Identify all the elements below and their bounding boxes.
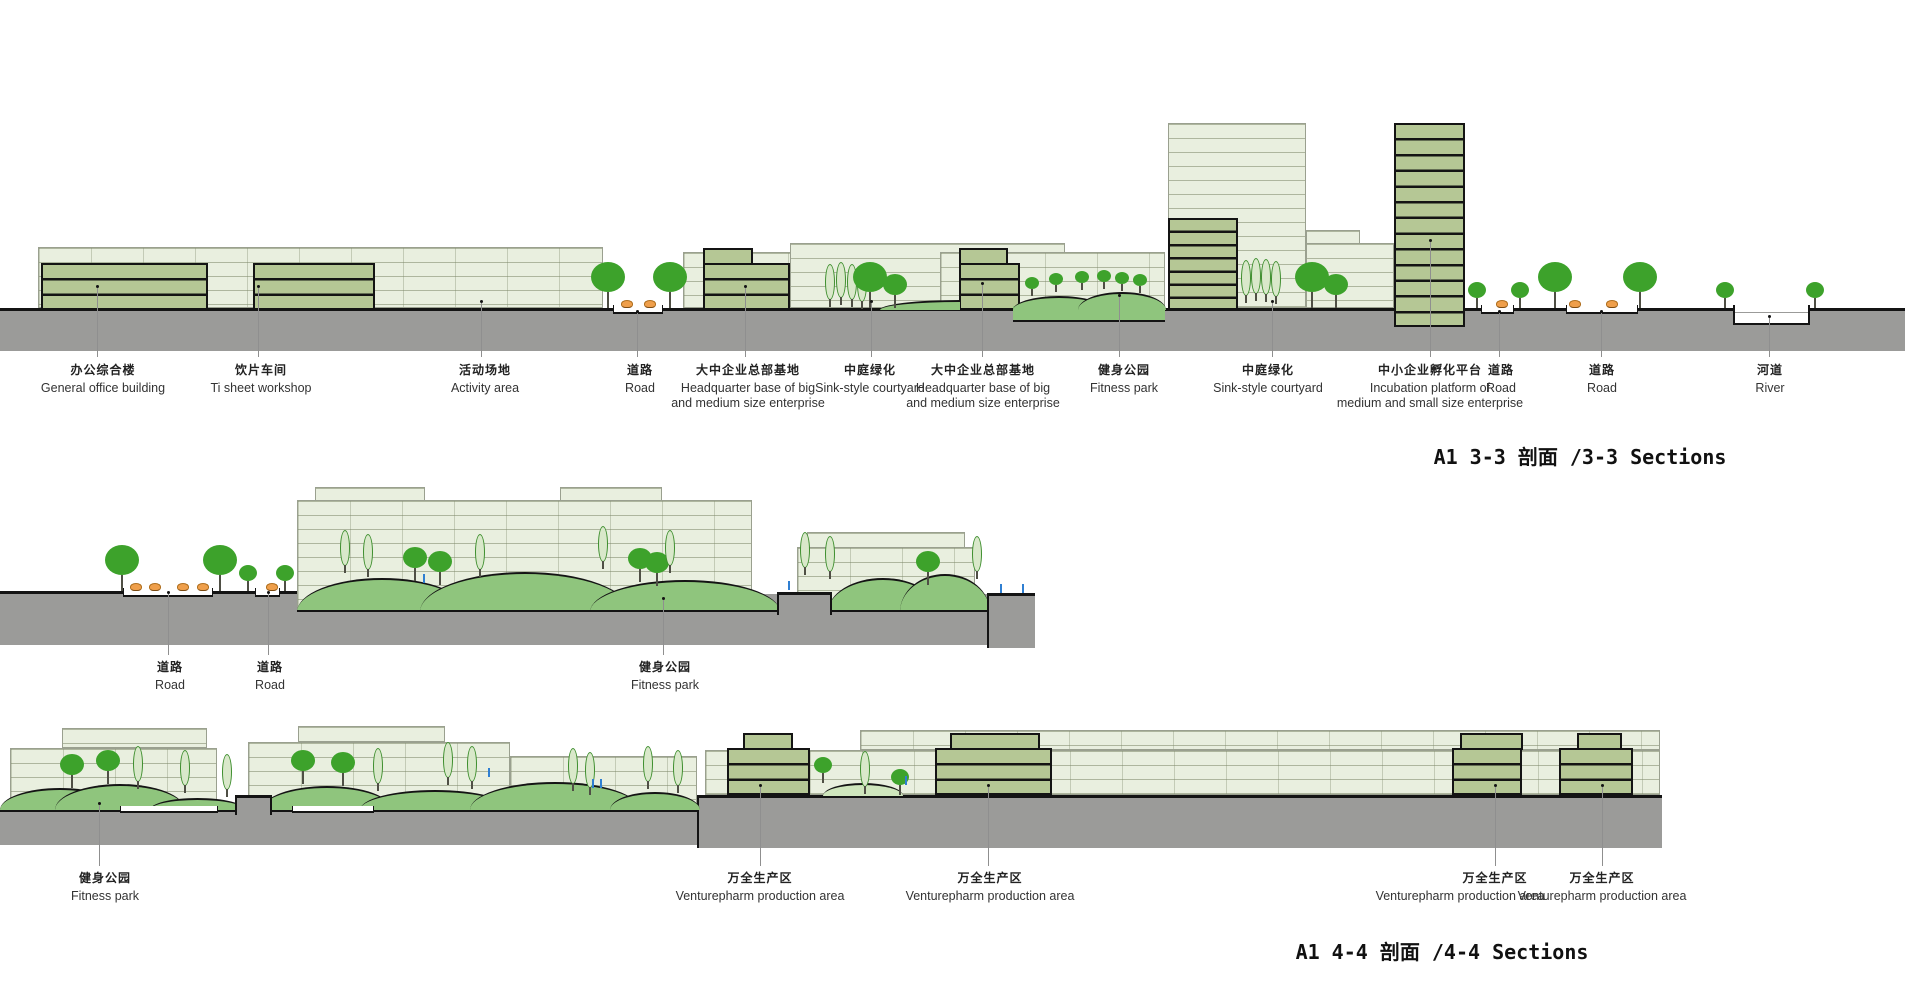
tree-icon: [1538, 262, 1572, 292]
section-drawing-sheet: 办公综合楼 General office building 饮片车间 Ti sh…: [0, 0, 1920, 983]
building-slab: [298, 726, 445, 742]
sprinkler-icon: [905, 776, 907, 785]
sprinkler-icon: [788, 581, 790, 590]
leader-line: [168, 594, 169, 655]
walkway: [777, 592, 832, 615]
poplar-icon: [643, 746, 653, 782]
poplar-icon: [825, 264, 835, 300]
tree-icon: [276, 565, 294, 581]
tree-icon: [105, 545, 139, 575]
bush-icon: [266, 583, 278, 591]
section-label: 健身公园 Fitness park: [1090, 361, 1158, 395]
tree-icon: [916, 551, 940, 572]
tree-icon: [1806, 282, 1824, 298]
sprinkler-icon: [592, 779, 594, 788]
section-label: 道路 Road: [255, 658, 285, 692]
building-tower-front: [1168, 218, 1238, 310]
building-slab: [62, 728, 207, 748]
poplar-icon: [598, 526, 608, 562]
section-label: 道路 Road: [1587, 361, 1617, 395]
section-label: 道路 Road: [155, 658, 185, 692]
bush-icon: [1606, 300, 1618, 308]
bush-icon: [177, 583, 189, 591]
tree-icon: [96, 750, 120, 771]
poplar-icon: [1261, 259, 1271, 295]
poplar-icon: [443, 742, 453, 778]
tree-icon: [291, 750, 315, 771]
section-label: 万全生产区 Venturepharm production area: [676, 869, 845, 903]
leader-line: [258, 288, 259, 357]
leader-line: [663, 600, 664, 655]
leader-line: [871, 303, 872, 357]
poplar-icon: [860, 751, 870, 787]
tree-icon: [1324, 274, 1348, 295]
section-label: 大中企业总部基地 Headquarter base of big and med…: [906, 361, 1060, 410]
leader-line: [988, 787, 989, 866]
bush-icon: [621, 300, 633, 308]
park-base-line: [297, 610, 987, 612]
leader-line: [637, 313, 638, 357]
poplar-icon: [340, 530, 350, 566]
section-label: 中庭绿化 Sink-style courtyard: [1213, 361, 1323, 395]
poplar-icon: [180, 750, 190, 786]
road-cut: [120, 806, 218, 813]
tree-icon: [239, 565, 257, 581]
leader-line: [1499, 313, 1500, 357]
leader-line: [1769, 318, 1770, 357]
sprinkler-icon: [1000, 584, 1002, 593]
tree-icon: [203, 545, 237, 575]
building-venturepharm-4: [1559, 748, 1633, 795]
leader-line: [1601, 313, 1602, 357]
sprinkler-icon: [600, 779, 602, 788]
poplar-icon: [222, 754, 232, 790]
poplar-icon: [665, 530, 675, 566]
tree-icon: [591, 262, 625, 292]
ground: [0, 812, 697, 845]
section-label: 河道 River: [1755, 361, 1784, 395]
poplar-icon: [1241, 260, 1251, 296]
building-venturepharm-1: [727, 748, 810, 795]
tree-icon: [1115, 272, 1129, 284]
section-label: 办公综合楼 General office building: [41, 361, 165, 395]
poplar-icon: [825, 536, 835, 572]
leader-line: [1119, 297, 1120, 357]
tree-icon: [60, 754, 84, 775]
section-label: 万全生产区 Venturepharm production area: [906, 869, 1075, 903]
section-label: 道路 Road: [625, 361, 655, 395]
ground: [697, 795, 1662, 848]
leader-line: [1602, 787, 1603, 866]
building-venturepharm-3: [1452, 748, 1522, 795]
leader-line: [745, 288, 746, 357]
sprinkler-icon: [1022, 584, 1024, 593]
poplar-icon: [1251, 258, 1261, 294]
bush-icon: [149, 583, 161, 591]
sprinkler-icon: [423, 574, 425, 583]
building-general-office: [41, 263, 208, 310]
section-label: 万全生产区 Venturepharm production area: [1518, 869, 1687, 903]
section-title-4-4: A1 4-4 剖面 /4-4 Sections: [1296, 936, 1589, 965]
section-title-3-3: A1 3-3 剖面 /3-3 Sections: [1434, 441, 1727, 470]
poplar-icon: [800, 532, 810, 568]
leader-line: [268, 594, 269, 655]
tree-icon: [403, 547, 427, 568]
tree-icon: [1511, 282, 1529, 298]
leader-line: [982, 285, 983, 357]
poplar-icon: [568, 748, 578, 784]
tree-icon: [1716, 282, 1734, 298]
bush-icon: [130, 583, 142, 591]
tree-icon: [428, 551, 452, 572]
building-slab: [560, 487, 662, 501]
building-venturepharm-2: [935, 748, 1052, 795]
road-cut: [292, 806, 374, 813]
tree-icon: [653, 262, 687, 292]
poplar-icon: [673, 750, 683, 786]
tree-icon: [1049, 273, 1063, 285]
tree-icon: [1025, 277, 1039, 289]
leader-line: [1495, 787, 1496, 866]
poplar-icon: [373, 748, 383, 784]
walkway: [235, 795, 272, 815]
leader-line: [1272, 303, 1273, 357]
tree-icon: [1623, 262, 1657, 292]
section-label: 活动场地 Activity area: [451, 361, 519, 395]
leader-line: [481, 303, 482, 357]
tree-icon: [1133, 274, 1147, 286]
walkway: [987, 593, 1035, 648]
sprinkler-icon: [488, 768, 490, 777]
leader-line: [97, 288, 98, 357]
tree-icon: [1468, 282, 1486, 298]
poplar-icon: [475, 534, 485, 570]
section-label: 健身公园 Fitness park: [631, 658, 699, 692]
river: [1733, 305, 1810, 325]
leader-line: [760, 787, 761, 866]
poplar-icon: [133, 746, 143, 782]
ground: [0, 311, 1905, 351]
leader-line: [99, 805, 100, 866]
tree-icon: [1097, 270, 1111, 282]
poplar-icon: [363, 534, 373, 570]
poplar-icon: [972, 536, 982, 572]
poplar-icon: [836, 262, 846, 298]
building-ti-sheet-workshop: [253, 263, 375, 310]
section-label: 道路 Road: [1486, 361, 1516, 395]
tree-icon: [814, 757, 832, 773]
tree-icon: [883, 274, 907, 295]
bush-icon: [1569, 300, 1581, 308]
poplar-icon: [1271, 261, 1281, 297]
tree-icon: [331, 752, 355, 773]
tree-icon: [1075, 271, 1089, 283]
section-label: 健身公园 Fitness park: [71, 869, 139, 903]
bush-icon: [1496, 300, 1508, 308]
building-slab: [315, 487, 425, 501]
tree-icon: [853, 262, 887, 292]
section-label: 饮片车间 Ti sheet workshop: [211, 361, 312, 395]
building-headquarter-base-2: [959, 263, 1020, 310]
section-label: 大中企业总部基地 Headquarter base of big and med…: [671, 361, 825, 410]
poplar-icon: [467, 746, 477, 782]
leader-line: [1430, 242, 1431, 357]
bush-icon: [644, 300, 656, 308]
bush-icon: [197, 583, 209, 591]
